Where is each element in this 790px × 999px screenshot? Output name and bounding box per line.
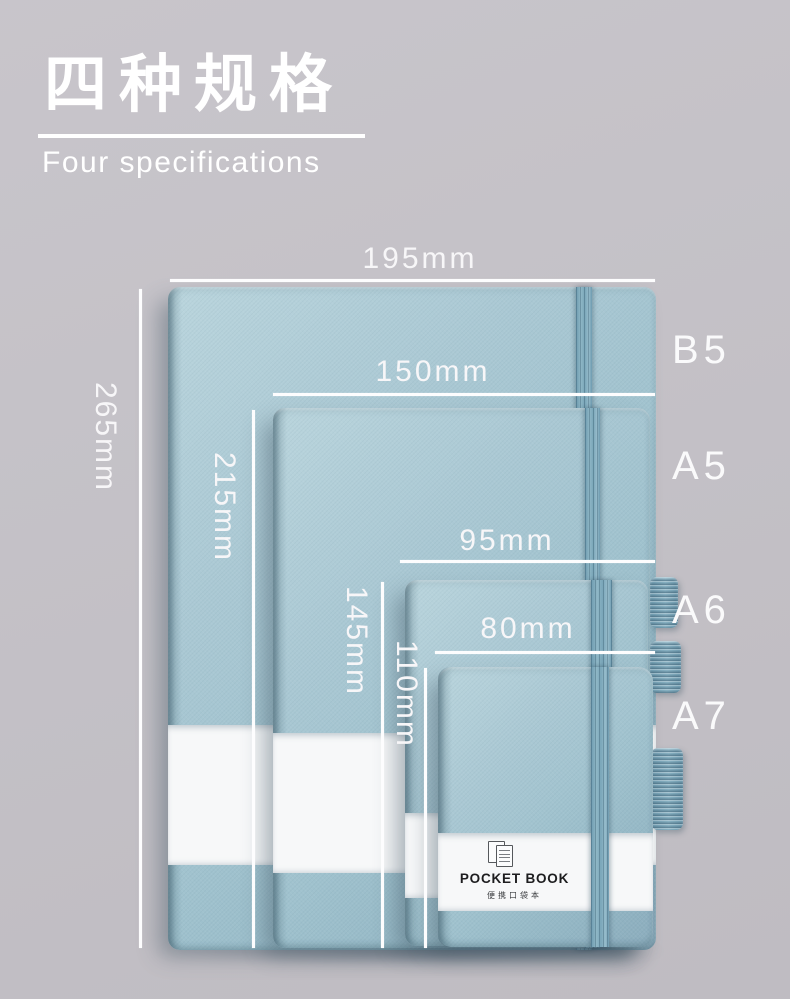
- notebook-a7: POCKET BOOK 便携口袋本 ): [438, 667, 653, 947]
- belly-band-print-area: POCKET BOOK 便携口袋本: [438, 833, 591, 911]
- dimension-line-a5-width: [273, 393, 655, 396]
- dimension-line-a7-width: [435, 651, 655, 654]
- dimension-line-a5-height: [252, 410, 255, 948]
- dimension-label-a7-width: 80mm: [468, 612, 588, 646]
- dimension-label-a6-width: 95mm: [447, 524, 567, 558]
- dimension-line-b5-width: [170, 279, 655, 282]
- notebook-pages-icon: [488, 841, 514, 867]
- brand-name: POCKET BOOK: [438, 871, 591, 886]
- dimension-label-a7-height: 110mm: [389, 640, 423, 748]
- elastic-band-a7: [591, 667, 609, 947]
- product-spec-image: 四种规格 Four specifications: [0, 0, 790, 999]
- dimension-label-a5-width: 150mm: [368, 355, 498, 389]
- page-title-chinese: 四种规格: [44, 34, 344, 125]
- dimension-label-b5-width: 195mm: [355, 242, 485, 276]
- dimension-line-a7-height: [424, 668, 427, 948]
- belly-band-a7: POCKET BOOK 便携口袋本 ): [438, 833, 653, 911]
- pen-loop-middle: [650, 641, 681, 693]
- dimension-label-a6-height: 145mm: [339, 586, 373, 696]
- dimension-line-a6-width: [400, 560, 655, 563]
- title-underline: [38, 134, 365, 138]
- size-label-a7: A7: [672, 694, 731, 739]
- dimension-label-a5-height: 215mm: [207, 452, 241, 562]
- size-label-a6: A6: [672, 588, 731, 633]
- pen-loop-a7: [651, 748, 683, 830]
- size-label-a5: A5: [672, 444, 731, 489]
- brand-caption-chinese: 便携口袋本: [438, 890, 591, 901]
- dimension-line-b5-height: [139, 289, 142, 948]
- size-label-b5: B5: [672, 328, 731, 373]
- page-title-english: Four specifications: [42, 146, 321, 180]
- dimension-line-a6-height: [381, 582, 384, 948]
- dimension-label-b5-height: 265mm: [88, 382, 122, 492]
- page-front-icon: [496, 845, 513, 867]
